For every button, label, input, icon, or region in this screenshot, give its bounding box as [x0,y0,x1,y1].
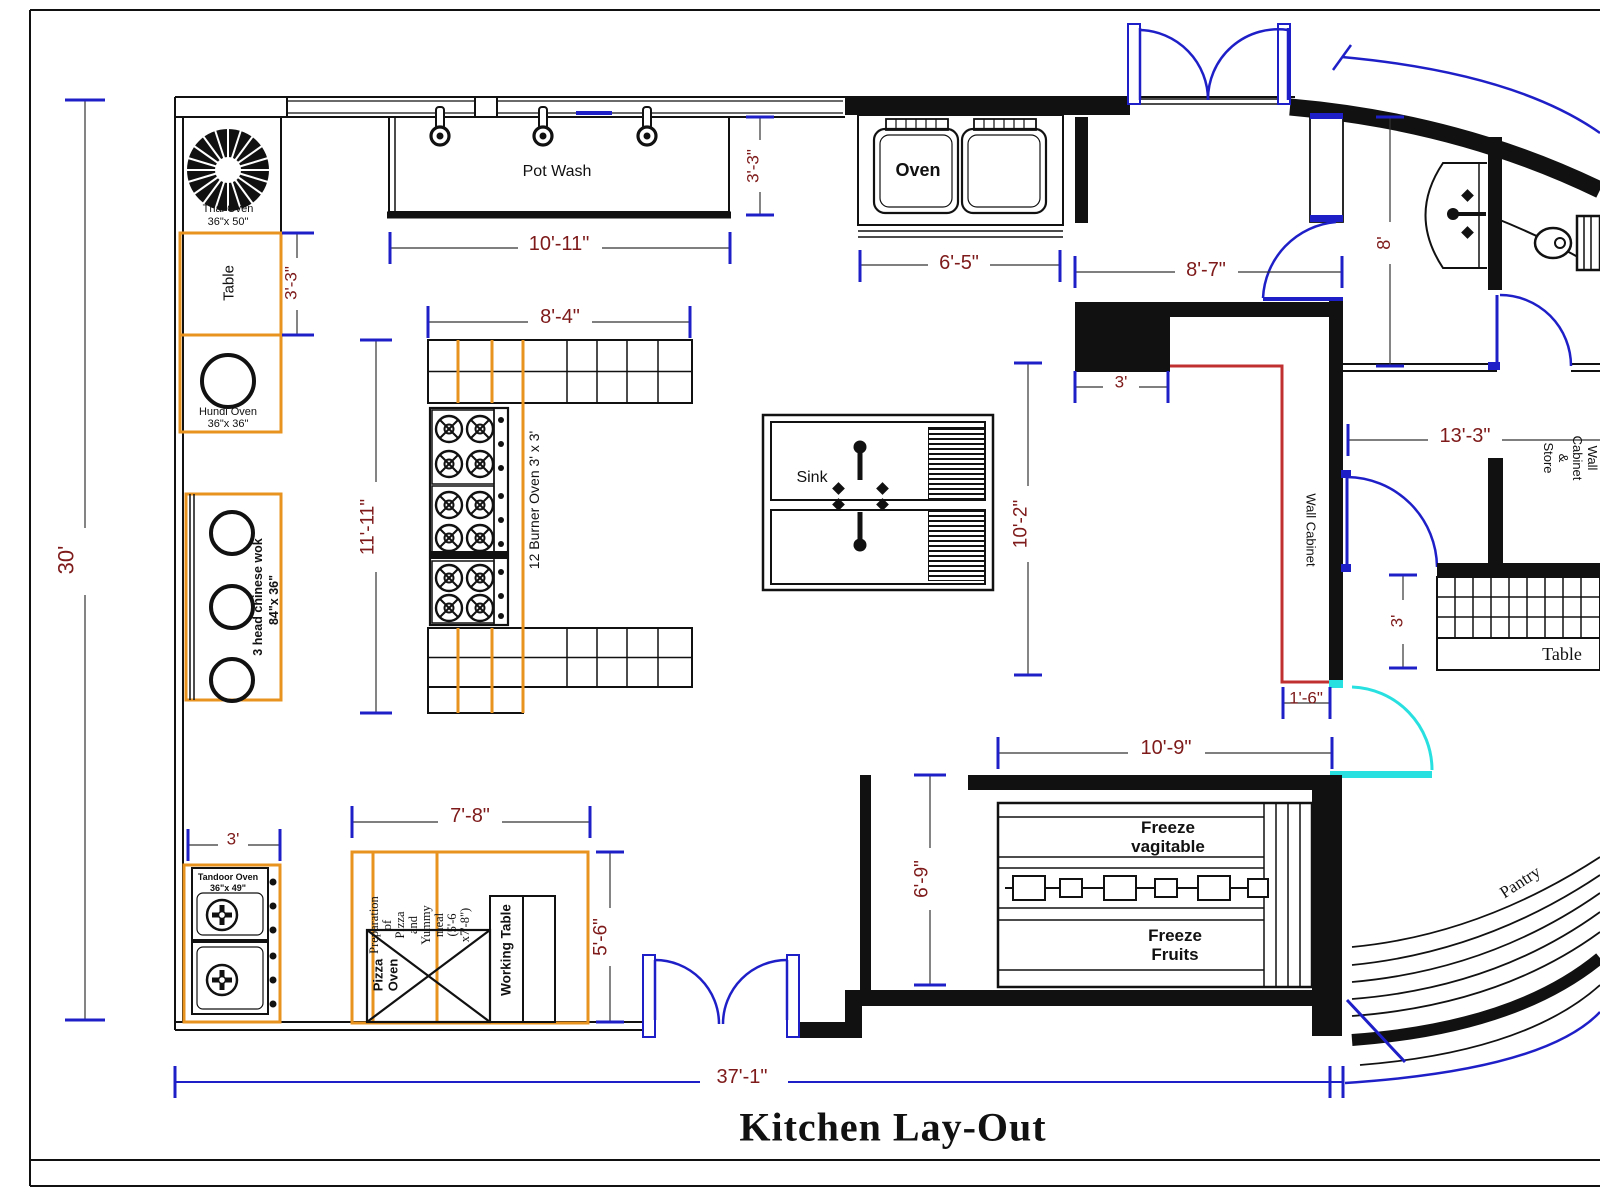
pot-wash-unit [387,107,731,215]
sink-drainboard-bottom [928,509,985,581]
double-door-bottom [643,955,799,1037]
wok-box [186,494,281,700]
wall-cabinet-block [1075,300,1343,683]
pantry-shelves [1345,857,1600,1083]
burner-12-unit [430,408,508,625]
wok-icon [190,494,253,701]
prep-area-box [352,852,588,1023]
working-table-box [490,896,555,1022]
freezer-cabinet [998,803,1312,987]
right-wall [1329,300,1343,683]
hundi-oven-icon [202,355,254,407]
table-left-box [180,233,281,335]
double-door-top [1128,24,1290,104]
store-walls [1437,458,1600,577]
cabinet-red-line [1170,366,1330,682]
sink-drainboard-top [928,427,985,499]
kitchen-floorplan: Thai Oven 36"x 50" Table Hundi Oven 36"x… [0,0,1600,1192]
tandoor-unit [192,868,277,1014]
toilet [1535,216,1600,270]
toilet-door [1497,295,1571,366]
pizza-oven-box [367,930,490,1022]
oven-unit [858,115,1088,237]
table-right-grid [1437,577,1600,670]
tandoor-box [184,865,280,1022]
freeze-room-walls [845,775,1342,1036]
wash-basin [1426,163,1488,268]
bathroom-door [1263,222,1343,299]
thai-oven-icon [186,117,281,233]
floorplan-drawing [0,0,1600,1192]
pantry-door-cyan [1329,680,1432,778]
store-door [1341,470,1437,572]
hundi-oven-box [180,335,281,432]
